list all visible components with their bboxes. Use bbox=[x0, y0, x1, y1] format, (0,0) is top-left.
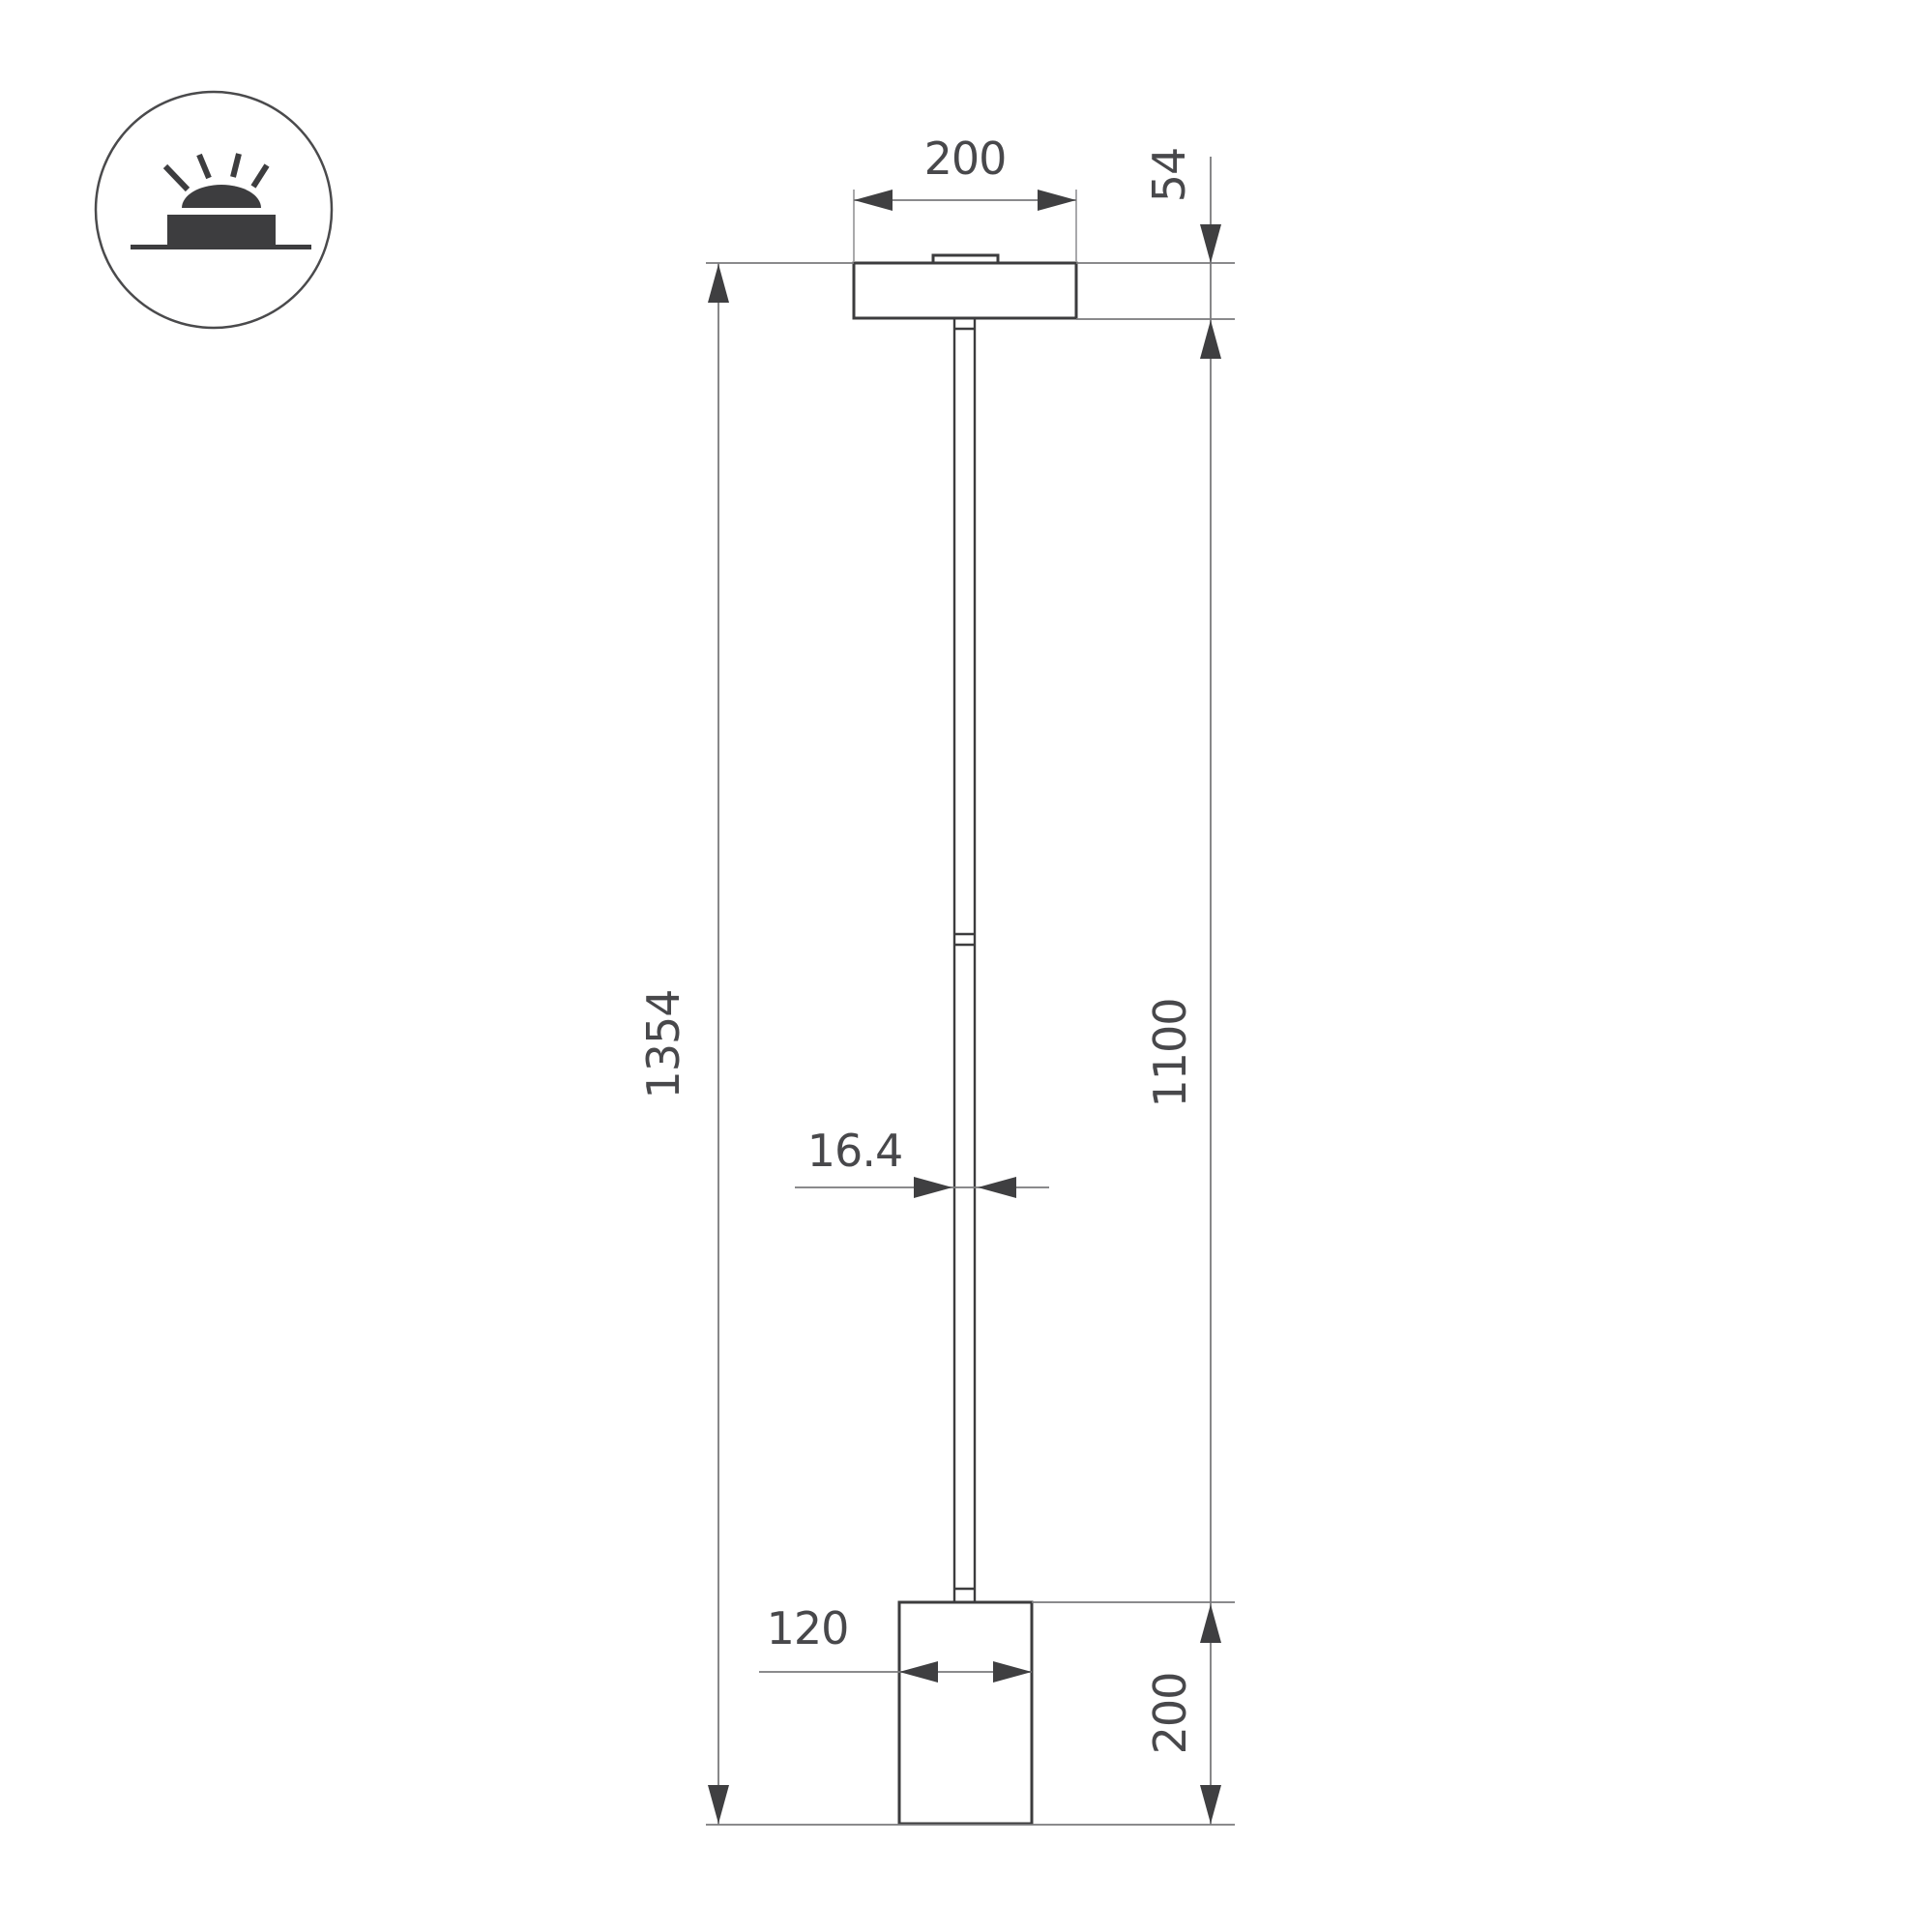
lamp-shade bbox=[899, 1602, 1032, 1824]
canopy-height-dimension-label: 54 bbox=[1147, 148, 1191, 203]
rod-diameter-dimension-label: 16.4 bbox=[807, 1128, 902, 1173]
arrow-right-icon bbox=[914, 1177, 952, 1198]
arrow-up-icon bbox=[708, 264, 729, 303]
arrow-down-icon bbox=[1200, 224, 1221, 263]
lamp-dome-shape bbox=[182, 185, 261, 208]
technical-drawing-page: 200 54 1354 1100 16.4 120 200 bbox=[0, 0, 1932, 1932]
rod-height-dimension-label: 1100 bbox=[1148, 998, 1192, 1107]
arrow-up-icon bbox=[1200, 1604, 1221, 1643]
icon-circle-border bbox=[96, 92, 332, 328]
shade-diameter-dimension-label: 120 bbox=[767, 1606, 849, 1651]
lamp-dimension-drawing bbox=[0, 0, 1932, 1932]
lamp-outline bbox=[854, 255, 1076, 1824]
lamp-body-shape bbox=[167, 215, 276, 245]
shade-height-dimension-label: 200 bbox=[1148, 1673, 1192, 1755]
total-height-dimension-label: 1354 bbox=[641, 989, 686, 1098]
arrow-down-icon bbox=[1200, 1785, 1221, 1824]
arrow-left-icon bbox=[978, 1177, 1016, 1198]
mounting-surface-line bbox=[131, 245, 311, 249]
arrow-right-icon bbox=[1038, 190, 1076, 211]
light-rays-icon bbox=[165, 154, 267, 190]
canopy-width-dimension-label: 200 bbox=[924, 136, 1007, 181]
surface-mounted-luminaire-icon bbox=[96, 92, 332, 328]
lamp-rod bbox=[954, 318, 975, 1602]
arrow-down-icon bbox=[708, 1785, 729, 1824]
arrow-left-icon bbox=[854, 190, 893, 211]
lamp-canopy bbox=[854, 263, 1076, 318]
arrow-up-icon bbox=[1200, 320, 1221, 359]
